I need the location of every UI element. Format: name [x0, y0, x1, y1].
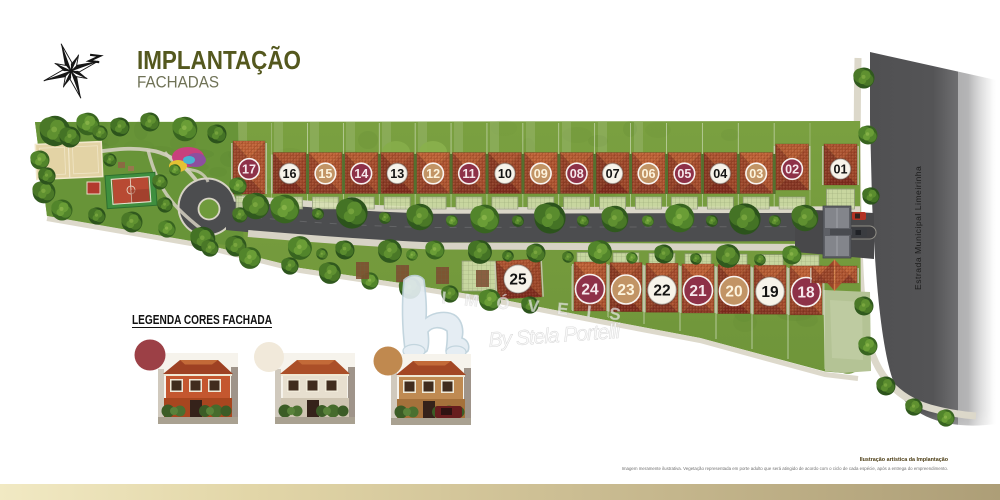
svg-text:15: 15	[318, 167, 332, 181]
svg-text:16: 16	[282, 167, 296, 181]
svg-text:19: 19	[761, 284, 779, 301]
svg-text:05: 05	[677, 167, 691, 181]
svg-text:21: 21	[689, 283, 707, 300]
svg-text:FACHADAS: FACHADAS	[137, 74, 219, 92]
svg-text:03: 03	[749, 167, 763, 181]
svg-text:02: 02	[785, 163, 799, 177]
svg-text:By Stela Portelli: By Stela Portelli	[488, 320, 623, 352]
svg-text:Estrada Municipal Limeirinha: Estrada Municipal Limeirinha	[913, 166, 923, 290]
svg-text:01: 01	[833, 163, 847, 177]
svg-text:LEGENDA CORES FACHADA: LEGENDA CORES FACHADA	[132, 312, 272, 327]
svg-text:04: 04	[713, 167, 727, 181]
svg-text:24: 24	[581, 282, 599, 299]
svg-text:IMPLANTAÇÃO: IMPLANTAÇÃO	[137, 45, 301, 75]
svg-text:13: 13	[390, 167, 404, 181]
svg-text:08: 08	[570, 167, 584, 181]
svg-text:06: 06	[641, 167, 655, 181]
svg-text:Ilustração artística da Implan: Ilustração artística da Implantação	[860, 457, 949, 463]
svg-text:11: 11	[462, 167, 475, 181]
svg-text:10: 10	[498, 167, 512, 181]
svg-text:20: 20	[725, 284, 742, 301]
svg-text:22: 22	[653, 283, 670, 300]
svg-text:18: 18	[797, 285, 815, 302]
svg-text:23: 23	[617, 282, 635, 299]
svg-text:07: 07	[606, 167, 620, 181]
svg-text:09: 09	[534, 167, 548, 181]
svg-text:25: 25	[509, 272, 527, 289]
svg-text:12: 12	[426, 167, 440, 181]
svg-text:Imagem meramente ilustrativa.: Imagem meramente ilustrativa. Vegetação …	[622, 466, 948, 471]
svg-text:17: 17	[242, 163, 256, 177]
svg-text:14: 14	[354, 167, 368, 181]
